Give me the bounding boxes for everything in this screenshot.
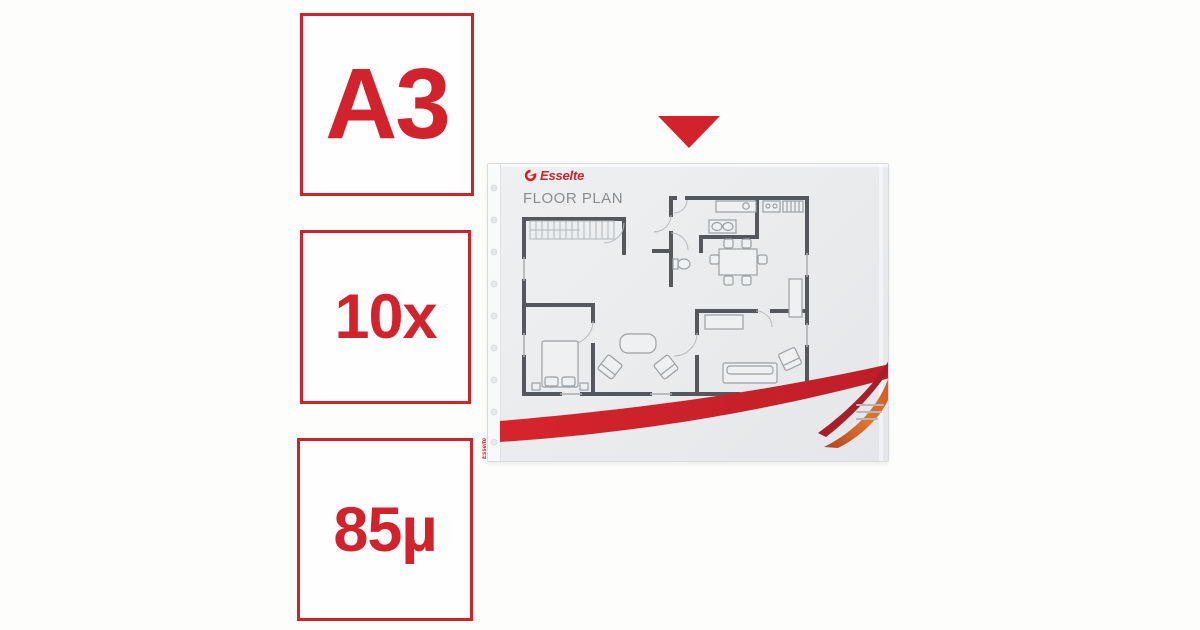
badge-thickness: 85µ bbox=[297, 438, 473, 621]
badge-count: 10x bbox=[300, 230, 471, 404]
esselte-logo-text: Esselte bbox=[540, 168, 584, 183]
swoosh-graphic bbox=[488, 351, 889, 451]
badge-format-label: A3 bbox=[325, 47, 449, 162]
esselte-swirl-icon bbox=[524, 169, 537, 182]
sleeve-top-edge bbox=[488, 164, 888, 167]
badge-count-label: 10x bbox=[334, 281, 436, 353]
triangle-down-icon bbox=[658, 116, 720, 148]
badge-format: A3 bbox=[300, 13, 474, 196]
sleeve-edge-brand-text: Esselte bbox=[482, 438, 488, 459]
esselte-logo: Esselte bbox=[524, 168, 584, 183]
badge-thickness-label: 85µ bbox=[333, 494, 436, 566]
fine-print-text bbox=[856, 404, 884, 425]
product-promo-image: { "colors": { "accent_red": "#d2232c", "… bbox=[0, 0, 1200, 630]
punched-pocket-image: Esselte FLOOR PLAN bbox=[487, 163, 889, 462]
